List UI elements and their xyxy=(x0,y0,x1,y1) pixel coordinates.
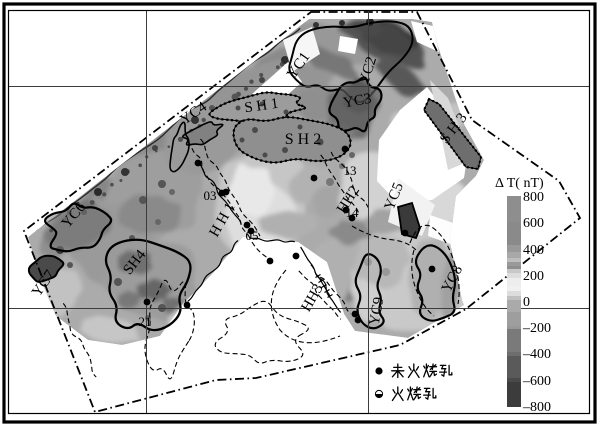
svg-text:21: 21 xyxy=(139,314,152,329)
svg-text:0: 0 xyxy=(523,295,530,310)
svg-text:Δ T( nT): Δ T( nT) xyxy=(495,176,544,191)
svg-text:200: 200 xyxy=(523,269,544,284)
svg-text:800: 800 xyxy=(523,190,544,205)
svg-text:600: 600 xyxy=(523,216,544,231)
svg-text:–400: –400 xyxy=(522,347,551,362)
svg-text:400: 400 xyxy=(523,243,544,258)
svg-text:–800: –800 xyxy=(522,400,551,415)
svg-text:S H 2: S H 2 xyxy=(285,131,321,148)
svg-text:–200: –200 xyxy=(522,321,551,336)
svg-text:–600: –600 xyxy=(522,374,551,389)
svg-text:13: 13 xyxy=(344,163,357,178)
svg-text:03: 03 xyxy=(204,188,217,203)
